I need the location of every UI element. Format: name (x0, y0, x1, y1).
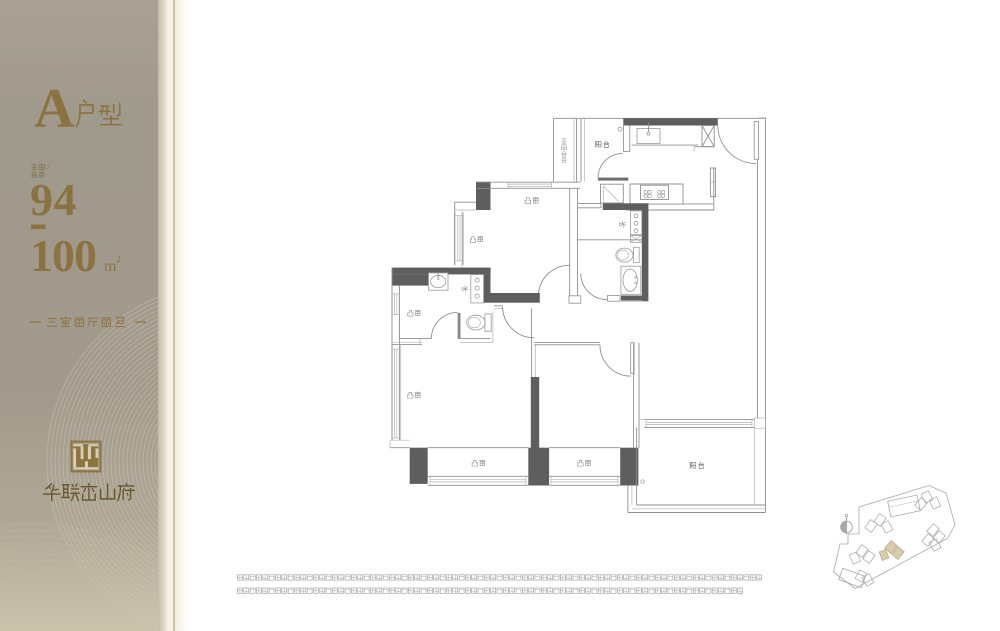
svg-text:2: 2 (116, 254, 121, 264)
svg-text:94: 94 (30, 174, 77, 225)
svg-text:2: 2 (46, 164, 49, 171)
svg-text:100: 100 (30, 230, 96, 281)
svg-text:A: A (34, 78, 75, 140)
